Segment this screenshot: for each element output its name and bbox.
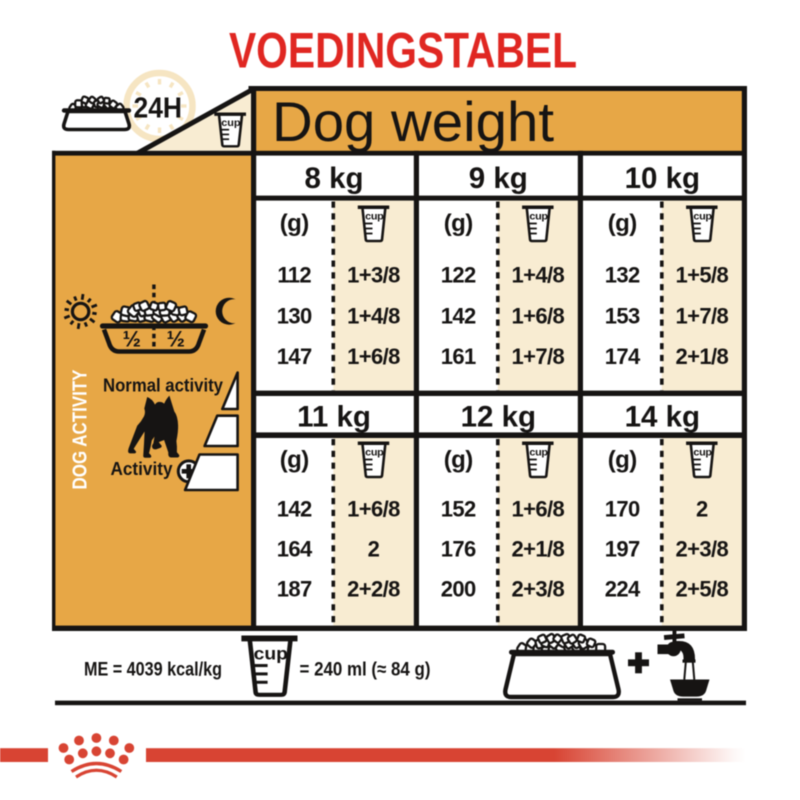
svg-text:130: 130 — [277, 304, 312, 329]
svg-text:1+7/8: 1+7/8 — [675, 304, 728, 329]
svg-text:14 kg: 14 kg — [625, 401, 700, 434]
svg-text:147: 147 — [277, 344, 312, 369]
svg-text:2+1/8: 2+1/8 — [675, 344, 728, 369]
svg-text:2+3/8: 2+3/8 — [675, 537, 728, 562]
svg-text:DOG ACTIVITY: DOG ACTIVITY — [69, 369, 92, 489]
svg-text:(g): (g) — [280, 447, 309, 474]
svg-text:1+3/8: 1+3/8 — [347, 263, 400, 288]
svg-text:2: 2 — [368, 537, 380, 562]
svg-text:(g): (g) — [608, 210, 637, 237]
svg-text:VOEDINGSTABEL: VOEDINGSTABEL — [229, 23, 577, 79]
svg-text:161: 161 — [441, 344, 476, 369]
svg-text:2+1/8: 2+1/8 — [511, 537, 564, 562]
svg-text:2+3/8: 2+3/8 — [511, 577, 564, 602]
svg-text:187: 187 — [277, 577, 312, 602]
svg-text:152: 152 — [441, 497, 476, 522]
svg-text:1+5/8: 1+5/8 — [675, 263, 728, 288]
svg-text:ME = 4039 kcal/kg: ME = 4039 kcal/kg — [84, 659, 222, 681]
svg-text:24H: 24H — [134, 93, 183, 125]
svg-text:(g): (g) — [280, 210, 309, 237]
svg-text:2: 2 — [696, 497, 708, 522]
svg-text:Normal activity: Normal activity — [103, 376, 223, 396]
svg-text:9 kg: 9 kg — [469, 162, 528, 195]
svg-text:Dog weight: Dog weight — [272, 90, 554, 153]
svg-text:11 kg: 11 kg — [297, 401, 371, 434]
svg-text:197: 197 — [605, 537, 640, 562]
svg-text:10 kg: 10 kg — [625, 162, 700, 195]
svg-text:164: 164 — [277, 537, 313, 562]
svg-text:12 kg: 12 kg — [461, 401, 536, 434]
svg-text:(g): (g) — [608, 447, 637, 474]
svg-text:112: 112 — [277, 263, 311, 288]
svg-text:1+6/8: 1+6/8 — [511, 497, 564, 522]
svg-text:174: 174 — [605, 344, 641, 369]
svg-text:½: ½ — [123, 327, 141, 352]
svg-text:Activity: Activity — [111, 459, 173, 479]
svg-text:1+6/8: 1+6/8 — [347, 344, 400, 369]
svg-text:1+4/8: 1+4/8 — [347, 304, 400, 329]
svg-text:2+2/8: 2+2/8 — [347, 577, 400, 602]
svg-text:122: 122 — [441, 263, 476, 288]
svg-text:½: ½ — [167, 327, 185, 352]
svg-text:1+6/8: 1+6/8 — [347, 497, 400, 522]
svg-text:200: 200 — [441, 577, 476, 602]
svg-text:153: 153 — [605, 304, 640, 329]
svg-text:142: 142 — [441, 304, 476, 329]
svg-text:(g): (g) — [444, 210, 473, 237]
svg-text:142: 142 — [277, 497, 312, 522]
svg-text:1+4/8: 1+4/8 — [511, 263, 564, 288]
svg-text:= 240 ml (≈ 84 g): = 240 ml (≈ 84 g) — [300, 659, 431, 681]
svg-text:176: 176 — [441, 537, 476, 562]
svg-text:2+5/8: 2+5/8 — [675, 577, 728, 602]
svg-text:(g): (g) — [444, 447, 473, 474]
svg-text:224: 224 — [605, 577, 641, 602]
svg-text:1+7/8: 1+7/8 — [511, 344, 564, 369]
svg-text:170: 170 — [605, 497, 640, 522]
svg-text:8 kg: 8 kg — [304, 162, 363, 195]
svg-text:1+6/8: 1+6/8 — [511, 304, 564, 329]
svg-text:132: 132 — [605, 263, 640, 288]
